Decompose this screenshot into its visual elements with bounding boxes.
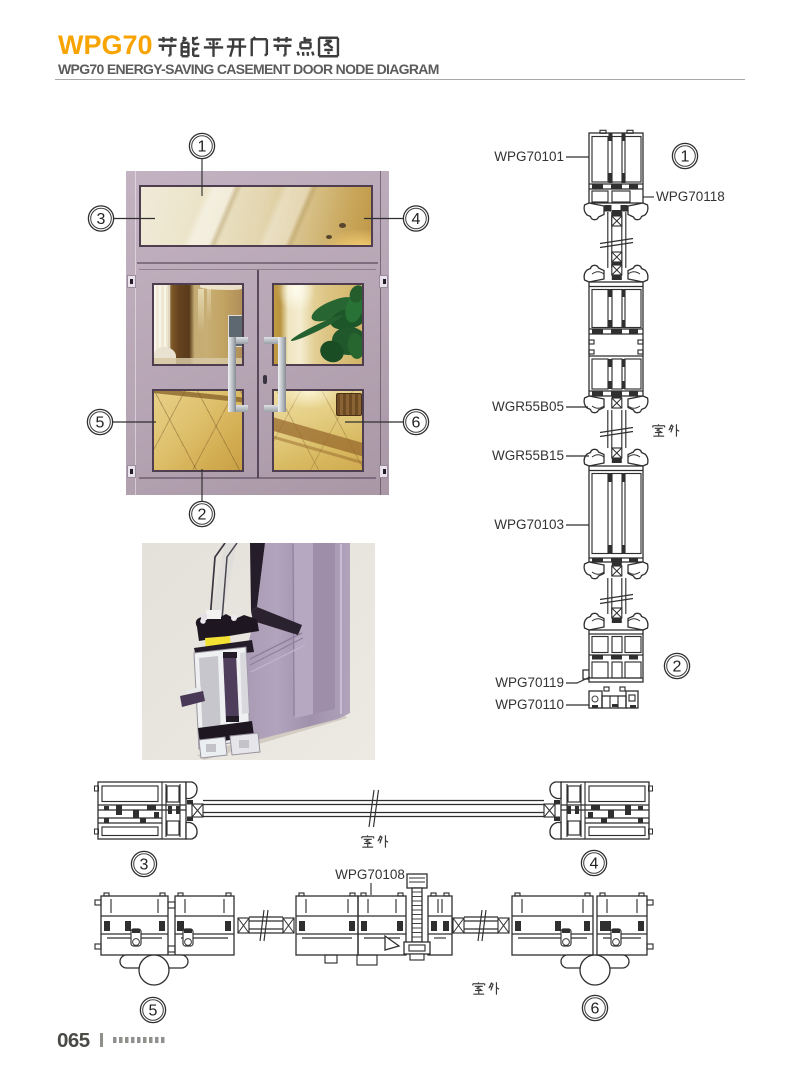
svg-text:6: 6	[412, 415, 421, 432]
svg-text:4: 4	[412, 211, 421, 228]
svg-text:WPG70119: WPG70119	[495, 675, 564, 690]
svg-text:WGR55B15: WGR55B15	[492, 448, 564, 463]
svg-text:WPG70101: WPG70101	[494, 149, 564, 164]
svg-text:4: 4	[590, 856, 599, 873]
svg-text:5: 5	[149, 1003, 158, 1020]
svg-text:WPG70108: WPG70108	[335, 867, 405, 882]
svg-text:2: 2	[673, 659, 682, 676]
svg-text:1: 1	[681, 149, 690, 166]
svg-text:WPG70110: WPG70110	[495, 697, 564, 712]
svg-text:3: 3	[140, 857, 149, 874]
svg-text:WPG70103: WPG70103	[494, 517, 564, 532]
svg-text:2: 2	[198, 507, 207, 524]
svg-text:WGR55B05: WGR55B05	[492, 399, 564, 414]
svg-text:1: 1	[198, 139, 207, 156]
svg-text:3: 3	[97, 211, 106, 228]
svg-text:WPG70118: WPG70118	[656, 189, 725, 204]
svg-text:5: 5	[96, 415, 105, 432]
svg-text:6: 6	[591, 1001, 600, 1018]
